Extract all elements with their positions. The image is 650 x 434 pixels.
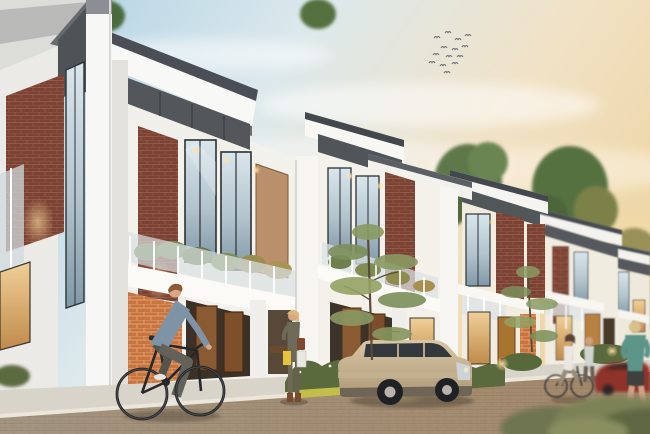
window — [618, 272, 629, 316]
car-windows — [364, 343, 452, 357]
torso — [584, 346, 594, 366]
bollard — [606, 345, 618, 357]
scene-canvas — [0, 0, 650, 434]
brick-accent-upper-2 — [527, 224, 545, 298]
head — [585, 337, 593, 345]
boot — [295, 393, 301, 402]
column — [250, 300, 266, 378]
pier-cap — [86, 0, 112, 14]
handbag — [297, 338, 305, 350]
leg — [288, 360, 293, 394]
front-pier — [86, 0, 112, 392]
lit-window — [468, 312, 490, 364]
shorts — [627, 371, 644, 386]
lit-window — [0, 262, 30, 350]
window — [574, 252, 588, 304]
side-recess — [112, 60, 128, 390]
car-headlight — [464, 368, 469, 373]
hand — [206, 344, 212, 350]
head — [629, 321, 641, 333]
entry-door — [224, 312, 243, 372]
white-bag — [297, 351, 306, 367]
architectural-render — [0, 0, 650, 434]
yellow-bag — [283, 351, 291, 365]
boot — [287, 393, 293, 402]
car-beltline — [338, 372, 472, 378]
bollard — [495, 357, 509, 371]
shoe — [154, 374, 166, 380]
wall-downlight-glow — [22, 198, 54, 246]
